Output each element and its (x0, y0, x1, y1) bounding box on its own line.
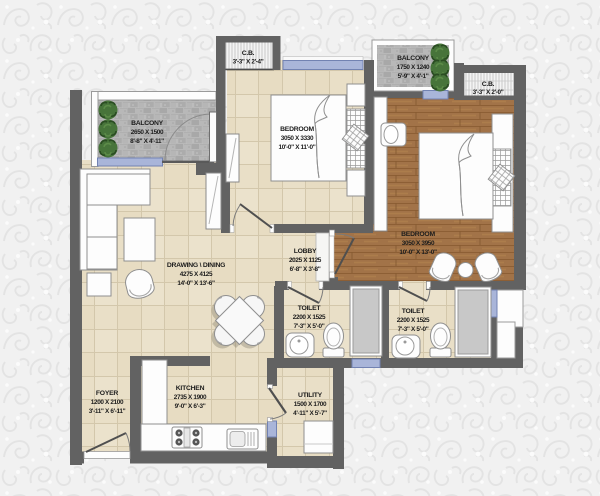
svg-text:3'-11" X 6'-11": 3'-11" X 6'-11" (89, 408, 126, 415)
svg-text:1200 X 2100: 1200 X 2100 (91, 399, 124, 406)
svg-text:9'-0" X 6'-3": 9'-0" X 6'-3" (175, 403, 206, 410)
svg-text:14'-0" X 13'-6": 14'-0" X 13'-6" (177, 280, 215, 287)
svg-text:C.B.: C.B. (242, 50, 255, 57)
svg-text:4275 X 4125: 4275 X 4125 (180, 271, 213, 278)
svg-text:3'-3" X 2'-4": 3'-3" X 2'-4" (233, 59, 264, 66)
svg-text:3050 X 3950: 3050 X 3950 (402, 240, 435, 247)
svg-text:LOBBY: LOBBY (294, 248, 317, 255)
svg-text:FOYER: FOYER (96, 390, 119, 397)
svg-text:TOILET: TOILET (298, 305, 322, 312)
svg-text:BALCONY: BALCONY (131, 120, 164, 127)
svg-text:2200 X 1525: 2200 X 1525 (293, 314, 326, 321)
svg-text:8'-8" X 4'-11": 8'-8" X 4'-11" (130, 138, 164, 145)
svg-text:3'-3" X 2'-0": 3'-3" X 2'-0" (473, 89, 504, 96)
svg-text:1500 X 1700: 1500 X 1700 (294, 401, 327, 408)
svg-text:7'-3" X 5'-0": 7'-3" X 5'-0" (398, 326, 429, 333)
svg-text:6'-8" X 3'-8": 6'-8" X 3'-8" (290, 266, 321, 273)
svg-text:3050 X 3330: 3050 X 3330 (281, 135, 314, 142)
svg-text:10'-0" X 13'-0": 10'-0" X 13'-0" (399, 249, 437, 256)
svg-text:2025 X 1125: 2025 X 1125 (289, 257, 322, 264)
svg-text:BALCONY: BALCONY (397, 55, 430, 62)
svg-text:BEDROOM: BEDROOM (401, 231, 435, 238)
svg-text:C.B.: C.B. (482, 81, 495, 88)
svg-text:1750 X 1240: 1750 X 1240 (397, 64, 430, 71)
svg-text:BEDROOM: BEDROOM (280, 126, 314, 133)
svg-text:TOILET: TOILET (402, 308, 426, 315)
svg-text:10'-0" X 11'-0": 10'-0" X 11'-0" (279, 144, 316, 151)
svg-text:4'-11" X 5'-7": 4'-11" X 5'-7" (293, 410, 327, 417)
svg-text:2650 X 1500: 2650 X 1500 (131, 129, 164, 136)
svg-text:2200 X 1525: 2200 X 1525 (397, 317, 430, 324)
svg-text:UTILITY: UTILITY (298, 392, 323, 399)
svg-text:2735 X 1900: 2735 X 1900 (174, 394, 207, 401)
svg-text:5'-9" X 4'-1": 5'-9" X 4'-1" (398, 73, 429, 80)
svg-text:7'-3" X 5'-0": 7'-3" X 5'-0" (294, 323, 325, 330)
svg-text:DRAWING \ DINING: DRAWING \ DINING (167, 262, 225, 269)
svg-text:KITCHEN: KITCHEN (176, 385, 205, 392)
